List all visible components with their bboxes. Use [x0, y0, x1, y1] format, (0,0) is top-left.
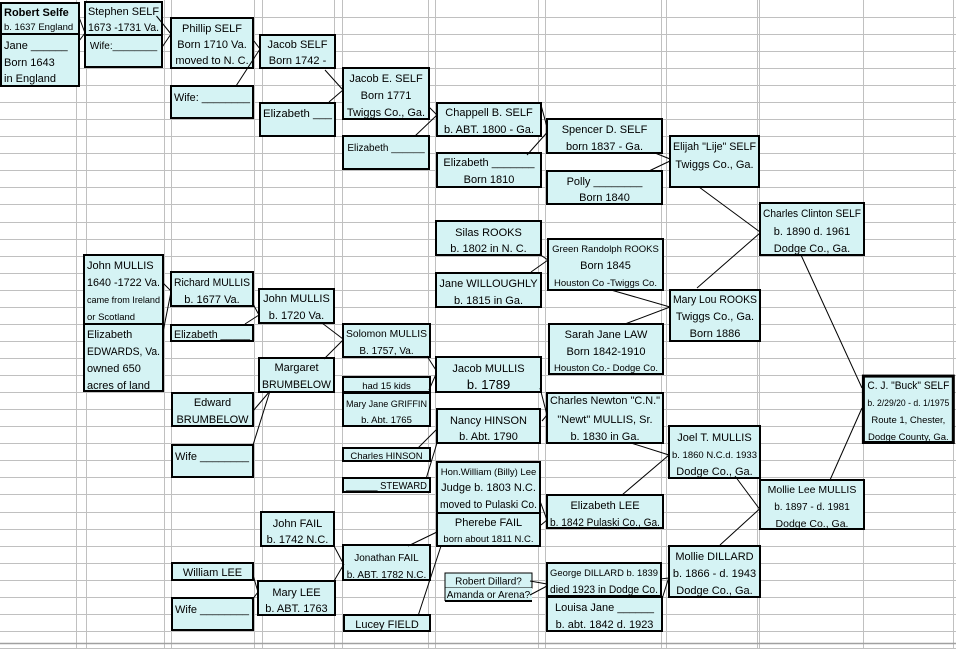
svg-text:BRUMBELOW: BRUMBELOW [176, 414, 249, 426]
svg-text:Born 1886: Born 1886 [690, 328, 741, 340]
svg-text:Charles HINSON: Charles HINSON [350, 451, 422, 462]
svg-text:b. 1637 England: b. 1637 England [4, 22, 73, 33]
svg-text:Robert Selfe: Robert Selfe [4, 7, 69, 19]
svg-text:Born 1845: Born 1845 [580, 260, 631, 272]
svg-text:1673 -1731 Va.: 1673 -1731 Va. [88, 22, 159, 34]
svg-text:Hon.William (Billy) Lee: Hon.William (Billy) Lee [441, 467, 537, 478]
svg-text:b. 1789: b. 1789 [467, 377, 510, 392]
svg-text:Jane ______: Jane ______ [4, 40, 68, 52]
svg-text:Lucey FIELD: Lucey FIELD [355, 619, 419, 631]
svg-text:C. J. "Buck" SELF: C. J. "Buck" SELF [867, 380, 949, 392]
svg-text:Wife:________: Wife:________ [90, 41, 158, 52]
svg-text:Louisa Jane ______: Louisa Jane ______ [555, 602, 655, 614]
svg-text:Dodge Co., Ga.: Dodge Co., Ga. [676, 585, 752, 597]
svg-text:Richard MULLIS: Richard MULLIS [174, 277, 250, 289]
svg-text:Route 1, Chester,: Route 1, Chester, [871, 415, 945, 426]
svg-text:in England: in England [4, 73, 56, 85]
svg-text:b. 1815 in Ga.: b. 1815 in Ga. [454, 295, 523, 307]
svg-text:BRUMBELOW: BRUMBELOW [262, 379, 332, 391]
svg-text:b. ABT. 1763: b. ABT. 1763 [265, 603, 327, 615]
svg-text:moved to N. C.: moved to N. C. [175, 55, 248, 67]
svg-text:Twiggs Co., Ga.: Twiggs Co., Ga. [676, 311, 754, 323]
svg-text:Polly ________: Polly ________ [567, 176, 644, 188]
svg-text:Phillip SELF: Phillip SELF [182, 23, 242, 35]
svg-text:Born 1810: Born 1810 [464, 174, 515, 186]
svg-text:born about 1811 N.C.: born about 1811 N.C. [443, 534, 533, 545]
svg-text:owned 650: owned 650 [87, 363, 141, 375]
svg-text:b. abt. 1842 d. 1923: b. abt. 1842 d. 1923 [556, 619, 654, 631]
svg-text:died 1923 in Dodge Co.: died 1923 in Dodge Co. [550, 584, 658, 596]
svg-text:Mollie DILLARD: Mollie DILLARD [675, 551, 753, 563]
svg-text:b. 1897 - d. 1981: b. 1897 - d. 1981 [774, 502, 850, 513]
svg-text:b. 1830 in Ga.: b. 1830 in Ga. [570, 431, 639, 443]
svg-text:b. 2/29/20 - d. 1/1975: b. 2/29/20 - d. 1/1975 [867, 398, 949, 409]
svg-text:Jonathan FAIL: Jonathan FAIL [354, 553, 419, 564]
svg-text:Born 1842-1910: Born 1842-1910 [567, 346, 646, 358]
svg-text:or Scotland: or Scotland [87, 312, 135, 323]
svg-text:Chappell B. SELF: Chappell B. SELF [445, 107, 533, 119]
svg-text:b. ABT. 1782 N.C.: b. ABT. 1782 N.C. [347, 570, 427, 581]
svg-text:Edward: Edward [194, 397, 231, 409]
svg-text:John MULLIS: John MULLIS [263, 293, 330, 305]
svg-text:Dodge County, Ga.: Dodge County, Ga. [868, 432, 949, 443]
svg-text:Mary Jane GRIFFIN: Mary Jane GRIFFIN [346, 399, 427, 410]
svg-text:Stephen SELF: Stephen SELF [88, 6, 159, 18]
svg-text:Jacob SELF: Jacob SELF [268, 39, 328, 51]
svg-text:Charles Newton "C.N.": Charles Newton "C.N." [550, 395, 660, 407]
svg-text:b. 1860 N.C.d. 1933: b. 1860 N.C.d. 1933 [672, 450, 757, 461]
svg-text:Jane WILLOUGHLY: Jane WILLOUGHLY [439, 278, 538, 290]
svg-text:Charles Clinton SELF: Charles Clinton SELF [763, 208, 861, 220]
svg-text:John FAIL: John FAIL [273, 518, 323, 530]
svg-text:Dodge Co., Ga.: Dodge Co., Ga. [676, 466, 752, 478]
svg-text:Nancy HINSON: Nancy HINSON [450, 415, 527, 427]
svg-text:Green Randolph ROOKS: Green Randolph ROOKS [552, 244, 659, 255]
svg-text:b. ABT. 1800 - Ga.: b. ABT. 1800 - Ga. [444, 124, 534, 136]
svg-text:Mary Lou ROOKS: Mary Lou ROOKS [673, 294, 757, 306]
svg-text:Solomon MULLIS: Solomon MULLIS [346, 328, 427, 340]
svg-text:Robert Dillard?: Robert Dillard? [455, 577, 522, 588]
svg-text:Amanda or Arena?: Amanda or Arena? [447, 590, 531, 601]
svg-text:Wife ________: Wife ________ [175, 451, 250, 463]
svg-text:Sarah Jane LAW: Sarah Jane LAW [565, 329, 648, 341]
svg-text:Joel T. MULLIS: Joel T. MULLIS [677, 432, 751, 444]
svg-text:Mollie Lee MULLIS: Mollie Lee MULLIS [768, 484, 857, 496]
svg-text:B. 1757, Va.: B. 1757, Va. [359, 346, 413, 357]
svg-text:Dodge Co., Ga.: Dodge Co., Ga. [776, 518, 849, 530]
svg-text:Elizabeth ___: Elizabeth ___ [263, 108, 333, 120]
svg-text:Margaret: Margaret [274, 362, 318, 374]
svg-text:b. 1802 in N. C.: b. 1802 in N. C. [450, 243, 526, 255]
svg-text:Houston Co -Twiggs Co.: Houston Co -Twiggs Co. [554, 278, 657, 289]
svg-text:Wife: ________: Wife: ________ [174, 92, 251, 104]
svg-text:Born 1742 -: Born 1742 - [269, 55, 327, 67]
svg-text:Elizabeth: Elizabeth [87, 329, 132, 341]
svg-text:Elizabeth _____: Elizabeth _____ [174, 329, 251, 341]
svg-text:Judge b. 1803 N.C.: Judge b. 1803 N.C. [441, 482, 536, 494]
svg-text:b. 1842 Pulaski Co., Ga.: b. 1842 Pulaski Co., Ga. [550, 517, 660, 529]
svg-text:Twiggs Co., Ga.: Twiggs Co., Ga. [675, 159, 753, 171]
svg-text:had 15 kids: had 15 kids [362, 381, 411, 392]
svg-text:b. 1866 - d. 1943: b. 1866 - d. 1943 [673, 568, 756, 580]
svg-text:moved to Pulaski Co.: moved to Pulaski Co. [440, 499, 537, 511]
svg-text:1640 -1722 Va.: 1640 -1722 Va. [87, 277, 160, 289]
svg-text:b. Abt. 1765: b. Abt. 1765 [361, 415, 412, 426]
svg-text:Born 1710 Va.: Born 1710 Va. [177, 39, 247, 51]
svg-text:Dodge Co., Ga.: Dodge Co., Ga. [774, 243, 850, 255]
svg-text:George DILLARD b. 1839: George DILLARD b. 1839 [550, 568, 658, 579]
svg-text:Born 1840: Born 1840 [579, 192, 630, 204]
svg-text:Jacob E. SELF: Jacob E. SELF [349, 73, 423, 85]
svg-text:born 1837 - Ga.: born 1837 - Ga. [566, 141, 643, 153]
svg-text:Twiggs Co., Ga.: Twiggs Co., Ga. [347, 107, 425, 119]
svg-text:Elijah "Lije" SELF: Elijah "Lije" SELF [673, 141, 756, 153]
svg-text:b. 1677 Va.: b. 1677 Va. [184, 294, 239, 306]
svg-text:Born 1771: Born 1771 [361, 90, 412, 102]
svg-text:Mary LEE: Mary LEE [272, 587, 320, 599]
svg-text:Born 1643: Born 1643 [4, 57, 55, 69]
svg-text:Spencer D. SELF: Spencer D. SELF [562, 124, 648, 136]
svg-text:William LEE: William LEE [183, 567, 242, 579]
svg-text:EDWARDS, Va.: EDWARDS, Va. [87, 346, 160, 358]
svg-text:Elizabeth _______: Elizabeth _______ [443, 157, 535, 169]
svg-text:Elizabeth LEE: Elizabeth LEE [570, 500, 639, 512]
svg-text:Jacob MULLIS: Jacob MULLIS [452, 363, 524, 375]
svg-text:John MULLIS: John MULLIS [87, 260, 154, 272]
svg-text:b. Abt. 1790: b. Abt. 1790 [459, 431, 518, 443]
svg-text:came from Ireland: came from Ireland [87, 295, 160, 306]
svg-text:Elizabeth ______: Elizabeth ______ [347, 143, 425, 154]
svg-text:Wife ________: Wife ________ [175, 604, 250, 616]
svg-text:"Newt" MULLIS, Sr.: "Newt" MULLIS, Sr. [557, 414, 652, 426]
svg-text:b. 1890 d. 1961: b. 1890 d. 1961 [774, 226, 850, 238]
svg-text:b. 1720 Va.: b. 1720 Va. [269, 310, 324, 322]
svg-text:b. 1742 N.C.: b. 1742 N.C. [267, 534, 329, 546]
svg-text:Silas ROOKS: Silas ROOKS [455, 227, 522, 239]
svg-text:Houston Co.- Dodge Co.: Houston Co.- Dodge Co. [554, 363, 658, 374]
svg-text:Pherebe FAIL: Pherebe FAIL [455, 517, 522, 529]
svg-text:______ STEWARD: ______ STEWARD [345, 481, 427, 492]
svg-text:acres of land: acres of land [87, 380, 150, 392]
